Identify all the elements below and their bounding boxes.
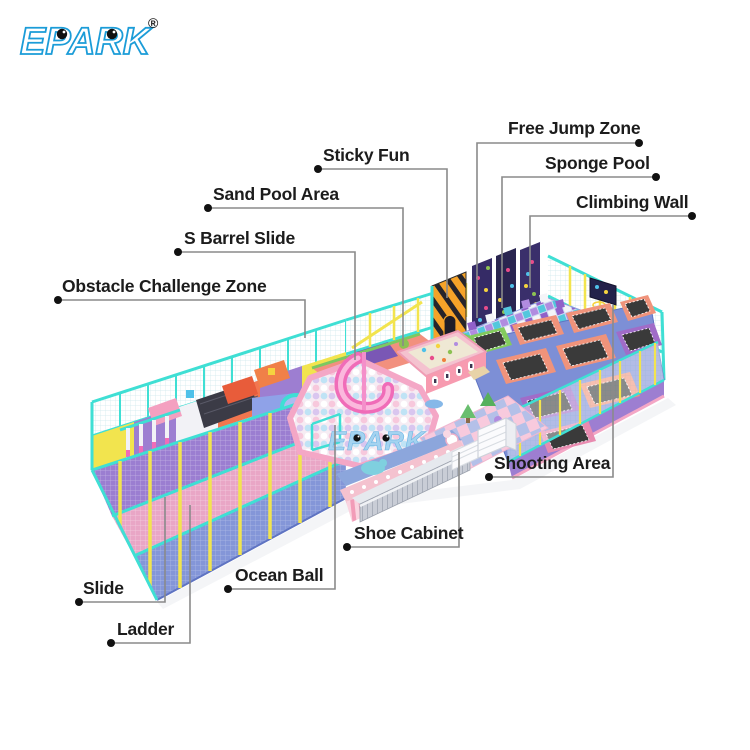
callout-ocean-ball: Ocean Ball: [235, 566, 323, 585]
callout-obstacle-challenge-zone: Obstacle Challenge Zone: [62, 277, 266, 296]
annotated-playground-figure: EPARK: [0, 0, 750, 750]
logo-eye-left: [57, 29, 67, 39]
logo-text: EPARK: [20, 21, 153, 63]
logo-eye-right: [107, 29, 117, 39]
callout-slide: Slide: [83, 579, 124, 598]
callout-ladder: Ladder: [117, 620, 174, 639]
callout-sticky-fun: Sticky Fun: [323, 146, 410, 165]
callout-sponge-pool: Sponge Pool: [545, 154, 650, 173]
callout-s-barrel-slide: S Barrel Slide: [184, 229, 295, 248]
callout-lines: [0, 0, 750, 750]
callout-shoe-cabinet: Shoe Cabinet: [354, 524, 463, 543]
brand-logo: EPARK ®: [16, 10, 186, 70]
registered-mark: ®: [148, 15, 159, 31]
callout-climbing-wall: Climbing Wall: [576, 193, 688, 212]
callout-shooting-area: Shooting Area: [494, 454, 610, 473]
callout-sand-pool-area: Sand Pool Area: [213, 185, 339, 204]
callout-free-jump-zone: Free Jump Zone: [508, 119, 640, 138]
